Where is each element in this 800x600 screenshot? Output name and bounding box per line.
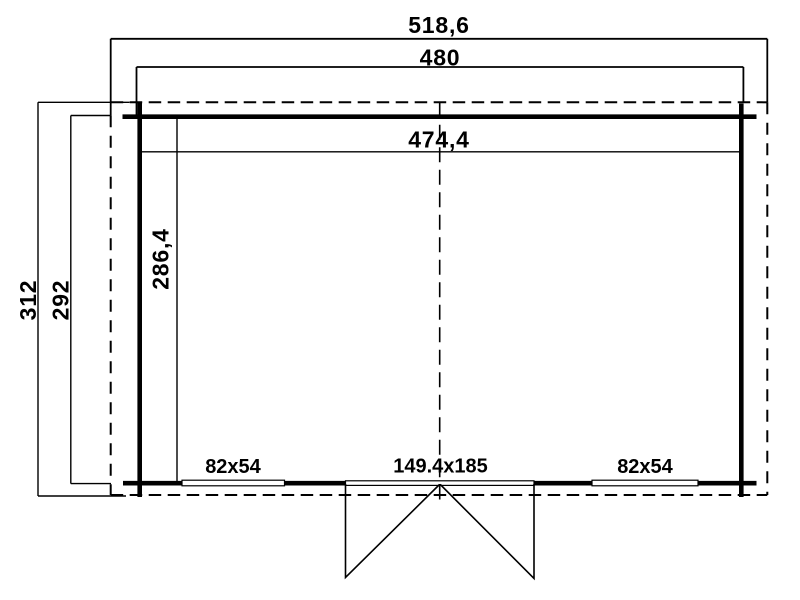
svg-text:474,4: 474,4 <box>408 127 470 153</box>
svg-text:480: 480 <box>420 45 461 71</box>
svg-text:149.4x185: 149.4x185 <box>393 455 488 477</box>
svg-text:292: 292 <box>48 280 74 321</box>
svg-text:286,4: 286,4 <box>148 228 174 290</box>
svg-text:312: 312 <box>15 280 41 321</box>
svg-text:82x54: 82x54 <box>617 456 673 478</box>
svg-text:82x54: 82x54 <box>205 456 261 478</box>
svg-text:518,6: 518,6 <box>408 12 470 38</box>
